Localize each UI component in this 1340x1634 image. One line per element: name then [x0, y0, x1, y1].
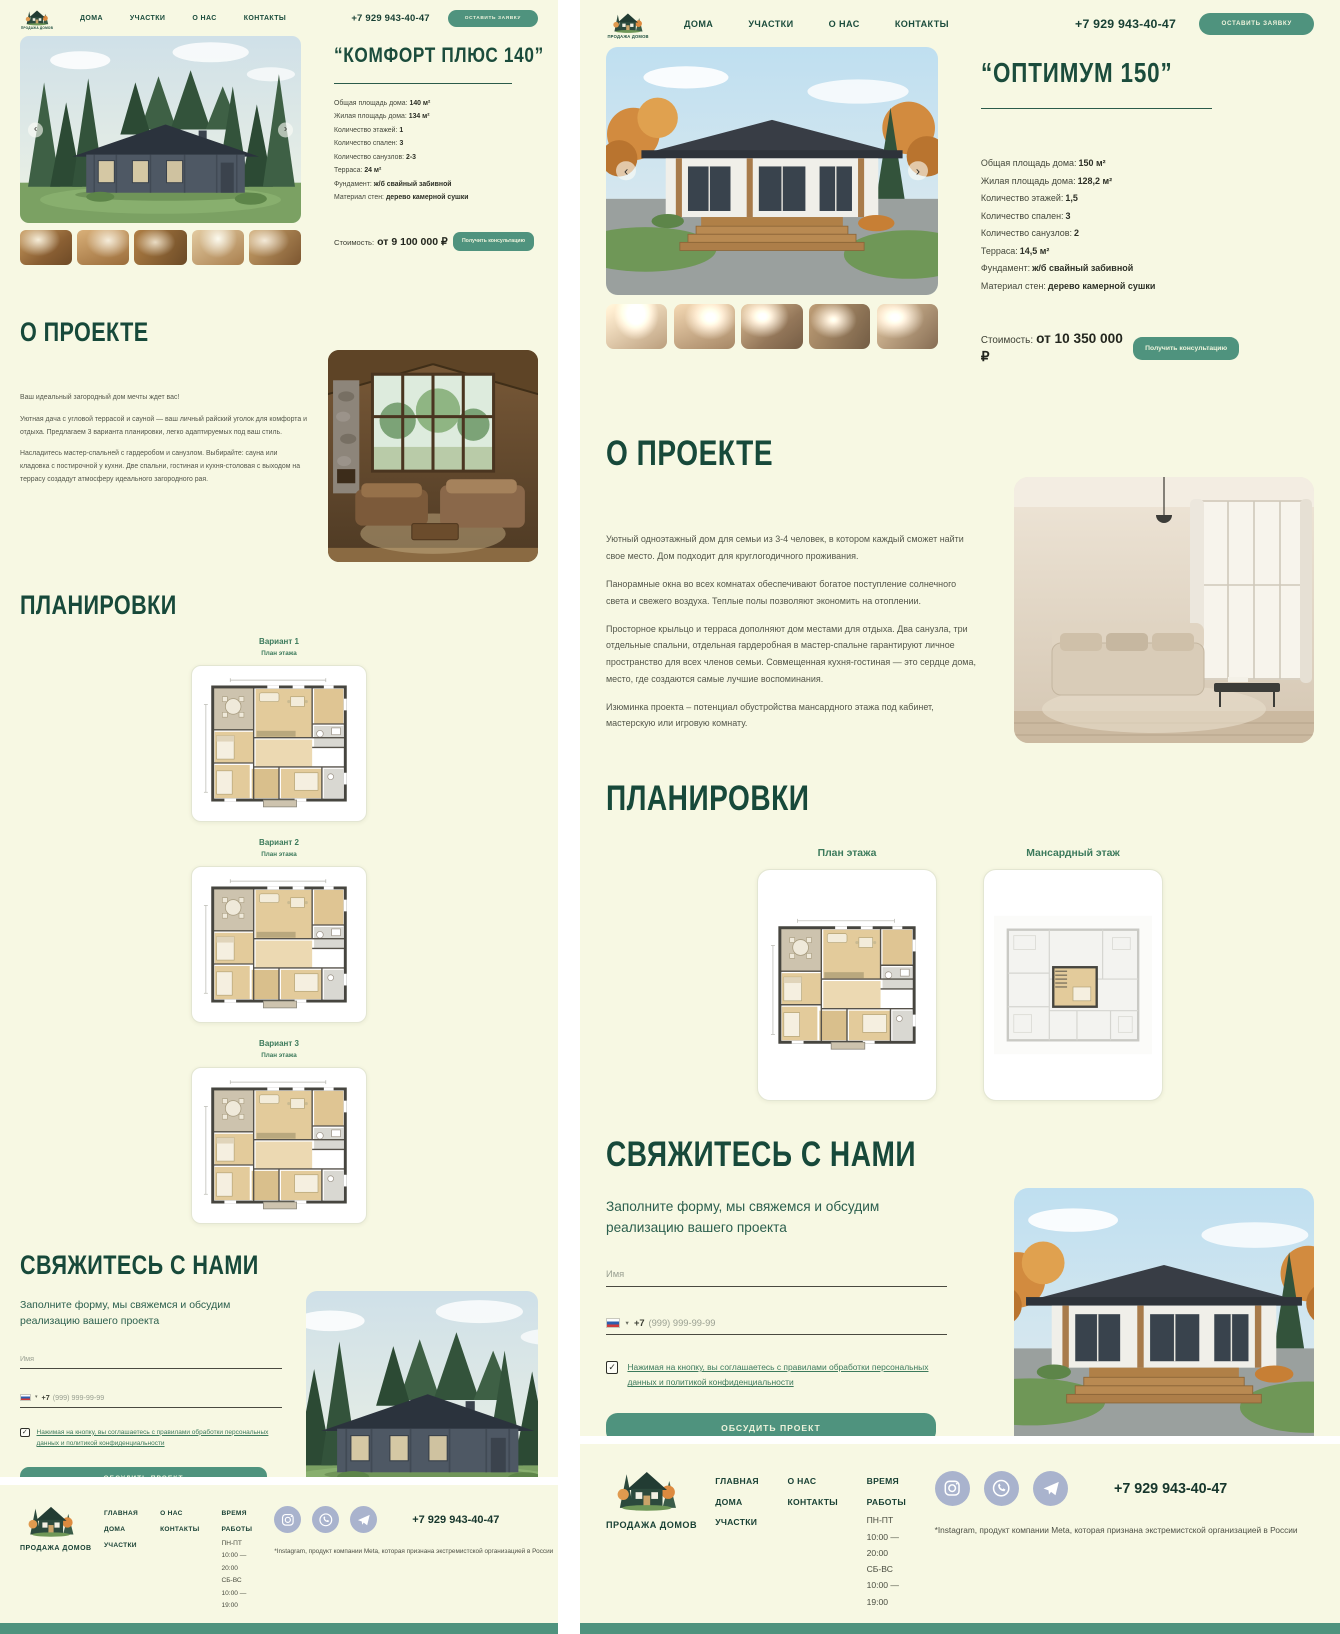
whatsapp-icon[interactable]: [984, 1471, 1019, 1506]
house-exterior-photo: [606, 47, 938, 295]
footer-phone[interactable]: +7 929 943-40-47: [412, 1514, 499, 1526]
contact-form: Заполните форму, мы свяжемся и обсудим р…: [20, 1291, 282, 1477]
nav-link-doma[interactable]: ДОМА: [684, 19, 713, 29]
check-icon: ✓: [22, 1428, 28, 1436]
russia-flag-icon: [20, 1394, 31, 1401]
price-row: Стоимость:от 10 350 000 ₽ Получить консу…: [981, 330, 1239, 366]
chevron-right-icon: ›: [284, 125, 287, 135]
spec-row: Материал стен:дерево камерной сушки: [981, 278, 1314, 295]
footer-link-onas[interactable]: О НАС: [160, 1506, 199, 1522]
footer-phone[interactable]: +7 929 943-40-47: [1114, 1481, 1227, 1497]
footer-logo[interactable]: ПРОДАЖА ДОМОВ: [606, 1463, 687, 1530]
agreement-checkbox[interactable]: ✓: [606, 1361, 618, 1373]
about-section: О ПРОЕКТЕ Ваш идеальный загородный дом м…: [0, 317, 558, 562]
footer-nav-col1: ГЛАВНАЯ ДОМА УЧАСТКИ: [715, 1463, 759, 1533]
gallery-thumbnail[interactable]: [134, 230, 186, 265]
logo-text: ПРОДАЖА ДОМОВ: [607, 34, 648, 39]
spec-row: Количество санузлов:2: [981, 225, 1314, 242]
carousel-next-button[interactable]: ›: [278, 122, 293, 137]
check-icon: ✓: [608, 1362, 616, 1373]
footer-link-onas[interactable]: О НАС: [788, 1471, 838, 1492]
footer-hours: ВРЕМЯ РАБОТЫ ПН-ПТ 10:00 — 20:00 СБ-ВС 1…: [867, 1463, 906, 1610]
plans-section: ПЛАНИРОВКИ Вариант 1 План этажа Вариант …: [0, 590, 558, 1224]
carousel-next-button[interactable]: ›: [908, 161, 928, 181]
site-footer: ПРОДАЖА ДОМОВ ГЛАВНАЯ ДОМА УЧАСТКИ О НАС…: [0, 1485, 558, 1623]
project-info: “ОПТИМУМ 150” Общая площадь дома:150 м² …: [938, 47, 1314, 367]
project-hero: ‹ › “КОМФОРТ ПЛЮС 140” Общая площадь дом…: [0, 36, 558, 265]
floor-plan-image: [201, 1077, 357, 1214]
logo-house-icon: [613, 1463, 681, 1512]
logo-house-icon: [25, 1500, 77, 1538]
floor-plan-image: [201, 675, 357, 812]
footer-link-glavnaya[interactable]: ГЛАВНАЯ: [104, 1506, 138, 1522]
floor-plan-image: [201, 876, 357, 1013]
project-title: “КОМФОРТ ПЛЮС 140”: [334, 44, 544, 68]
gallery-thumbnails: [606, 304, 938, 350]
page-komfort-140: ПРОДАЖА ДОМОВ ДОМА УЧАСТКИ О НАС КОНТАКТ…: [0, 0, 558, 1634]
floor-plan-card[interactable]: [983, 869, 1163, 1101]
site-footer: ПРОДАЖА ДОМОВ ГЛАВНАЯ ДОМА УЧАСТКИ О НАС…: [580, 1444, 1340, 1623]
phone-input[interactable]: [53, 1393, 282, 1402]
main-nav: ДОМА УЧАСТКИ О НАС КОНТАКТЫ: [684, 19, 949, 29]
agreement-row: ✓ Нажимая на кнопку, вы соглашаетесь с п…: [20, 1427, 282, 1450]
project-main-photo: ‹ ›: [606, 47, 938, 295]
photo-gallery: ‹ ›: [606, 47, 938, 367]
nav-link-kontakty[interactable]: КОНТАКТЫ: [244, 15, 286, 22]
request-button[interactable]: ОСТАВИТЬ ЗАЯВКУ: [1199, 13, 1314, 36]
gallery-thumbnail[interactable]: [77, 230, 129, 265]
caret-down-icon[interactable]: ▾: [625, 1319, 628, 1327]
footer-link-uchastki[interactable]: УЧАСТКИ: [715, 1512, 759, 1533]
name-field: [20, 1354, 282, 1369]
spec-row: Общая площадь дома:140 м²: [334, 97, 558, 110]
footer-link-doma[interactable]: ДОМА: [104, 1522, 138, 1538]
footer-link-glavnaya[interactable]: ГЛАВНАЯ: [715, 1471, 759, 1492]
spec-row: Количество этажей:1,5: [981, 190, 1314, 207]
footer-link-uchastki[interactable]: УЧАСТКИ: [104, 1538, 138, 1554]
chevron-left-icon: ‹: [624, 164, 628, 177]
contact-form: Заполните форму, мы свяжемся и обсудим р…: [606, 1188, 947, 1436]
header-phone[interactable]: +7 929 943-40-47: [351, 13, 429, 24]
nav-link-doma[interactable]: ДОМА: [80, 15, 103, 22]
footer-link-kontakty[interactable]: КОНТАКТЫ: [160, 1522, 199, 1538]
name-input[interactable]: [20, 1354, 282, 1363]
gallery-thumbnail[interactable]: [606, 304, 667, 350]
spec-row: Терраса:14,5 м²: [981, 243, 1314, 260]
plan-floor: План этажа: [757, 848, 937, 1101]
footer-hours: ВРЕМЯ РАБОТЫ ПН-ПТ 10:00 — 20:00 СБ-ВС 1…: [221, 1500, 252, 1613]
spec-row: Материал стен:дерево камерной сушки: [334, 191, 558, 204]
plan-attic: Мансардный этаж: [983, 848, 1163, 1101]
floor-plan-image: [768, 882, 926, 1088]
project-main-photo: ‹ ›: [20, 36, 301, 223]
spec-row: Жилая площадь дома:128,2 м²: [981, 173, 1314, 190]
agreement-checkbox[interactable]: ✓: [20, 1428, 30, 1438]
bottom-bar: [0, 1623, 558, 1634]
screenshot-canvas: ПРОДАЖА ДОМОВ ДОМА УЧАСТКИ О НАС КОНТАКТ…: [0, 0, 1340, 1634]
logo-text: ПРОДАЖА ДОМОВ: [21, 26, 53, 30]
footer-nav-col2: О НАС КОНТАКТЫ: [160, 1500, 199, 1538]
telegram-icon[interactable]: [1033, 1471, 1068, 1506]
submit-button[interactable]: ОБСУДИТЬ ПРОЕКТ: [20, 1467, 267, 1477]
consult-button[interactable]: Получить консультацию: [453, 232, 534, 251]
site-header: ПРОДАЖА ДОМОВ ДОМА УЧАСТКИ О НАС КОНТАКТ…: [580, 0, 1340, 39]
footer-gap: [580, 1436, 1340, 1444]
site-header: ПРОДАЖА ДОМОВ ДОМА УЧАСТКИ О НАС КОНТАКТ…: [0, 0, 558, 30]
header-phone[interactable]: +7 929 943-40-47: [1075, 17, 1176, 31]
project-info: “КОМФОРТ ПЛЮС 140” Общая площадь дома:14…: [301, 36, 558, 265]
about-section: О ПРОЕКТЕ Уютный одноэтажный дом для сем…: [580, 434, 1340, 743]
footer-disclaimer: *Instagram, продукт компании Meta, котор…: [935, 1523, 1325, 1538]
footer-gap: [0, 1477, 558, 1485]
house-photo: [306, 1291, 538, 1477]
spec-row: Количество спален:3: [334, 137, 558, 150]
about-text: Уютный одноэтажный дом для семьи из 3-4 …: [606, 531, 980, 742]
footer-nav-col1: ГЛАВНАЯ ДОМА УЧАСТКИ: [104, 1500, 138, 1553]
price: Стоимость:от 9 100 000 ₽: [334, 232, 448, 250]
spec-row: Фундамент:ж/б свайный забивной: [334, 178, 558, 191]
photo-gallery: ‹ ›: [20, 36, 301, 265]
main-nav: ДОМА УЧАСТКИ О НАС КОНТАКТЫ: [80, 15, 286, 22]
logo-house-icon: [24, 7, 50, 26]
chevron-right-icon: ›: [916, 164, 920, 177]
phone-field: ▾ +7: [20, 1393, 282, 1408]
page-optimum-150: ПРОДАЖА ДОМОВ ДОМА УЧАСТКИ О НАС КОНТАКТ…: [580, 0, 1340, 1634]
plans-section: ПЛАНИРОВКИ План этажа Мансардный этаж: [580, 779, 1340, 1101]
nav-link-kontakty[interactable]: КОНТАКТЫ: [895, 19, 949, 29]
project-hero: ‹ › “ОПТИМУМ 150” Общая площадь дома:150…: [580, 47, 1340, 367]
phone-field: ▾ +7: [606, 1318, 947, 1336]
spec-row: Количество санузлов:2-3: [334, 151, 558, 164]
request-button[interactable]: ОСТАВИТЬ ЗАЯВКУ: [448, 10, 538, 27]
footer-right: +7 929 943-40-47 *Instagram, продукт ком…: [274, 1500, 558, 1557]
spec-row: Терраса:24 м²: [334, 164, 558, 177]
contact-subtitle: Заполните форму, мы свяжемся и обсудим р…: [20, 1297, 272, 1330]
about-title: О ПРОЕКТЕ: [20, 317, 149, 348]
footer-disclaimer: *Instagram, продукт компании Meta, котор…: [274, 1546, 558, 1557]
contact-subtitle: Заполните форму, мы свяжемся и обсудим р…: [606, 1196, 934, 1238]
price-row: Стоимость:от 9 100 000 ₽ Получить консул…: [334, 232, 534, 251]
nav-link-onas[interactable]: О НАС: [192, 15, 216, 22]
telegram-icon[interactable]: [350, 1506, 377, 1533]
footer-logo[interactable]: ПРОДАЖА ДОМОВ: [20, 1500, 82, 1552]
instagram-icon[interactable]: [935, 1471, 970, 1506]
spec-row: Количество этажей:1: [334, 124, 558, 137]
floor-plan-card[interactable]: [191, 665, 367, 822]
house-photo: [1014, 1188, 1314, 1436]
footer-link-doma[interactable]: ДОМА: [715, 1492, 759, 1513]
footer-link-kontakty[interactable]: КОНТАКТЫ: [788, 1492, 838, 1513]
nav-link-uchastki[interactable]: УЧАСТКИ: [748, 19, 793, 29]
footer-nav-col2: О НАС КОНТАКТЫ: [788, 1463, 838, 1512]
spec-list: Общая площадь дома:150 м² Жилая площадь …: [981, 155, 1314, 295]
gallery-thumbnail[interactable]: [741, 304, 802, 350]
name-field: [606, 1269, 947, 1287]
spec-list: Общая площадь дома:140 м² Жилая площадь …: [334, 97, 558, 205]
footer-right: +7 929 943-40-47 *Instagram, продукт ком…: [935, 1463, 1325, 1537]
agreement-link[interactable]: Нажимая на кнопку, вы соглашаетесь с пра…: [627, 1360, 946, 1390]
gallery-thumbnail[interactable]: [20, 230, 72, 265]
site-logo[interactable]: ПРОДАЖА ДОМОВ: [20, 7, 54, 30]
gallery-thumbnail[interactable]: [249, 230, 301, 265]
interior-photo: [1014, 477, 1314, 743]
floor-plan-card[interactable]: [191, 866, 367, 1023]
carousel-prev-button[interactable]: ‹: [616, 161, 636, 181]
logo-house-icon: [611, 9, 645, 34]
phone-prefix: +7: [42, 1393, 50, 1402]
spec-row: Жилая площадь дома:134 м²: [334, 110, 558, 123]
title-divider: [981, 108, 1212, 109]
house-exterior-photo: [20, 36, 301, 223]
chevron-left-icon: ‹: [34, 125, 37, 135]
carousel-prev-button[interactable]: ‹: [28, 122, 43, 137]
gallery-thumbnails: [20, 230, 301, 265]
floor-plan-card[interactable]: [191, 1067, 367, 1224]
russia-flag-icon: [606, 1318, 620, 1327]
nav-link-onas[interactable]: О НАС: [829, 19, 860, 29]
phone-input[interactable]: [648, 1318, 946, 1328]
contact-title: СВЯЖИТЕСЬ С НАМИ: [606, 1135, 916, 1175]
submit-button[interactable]: ОБСУДИТЬ ПРОЕКТ: [606, 1413, 936, 1436]
title-divider: [334, 83, 512, 84]
site-logo[interactable]: ПРОДАЖА ДОМОВ: [606, 9, 650, 39]
contact-section: СВЯЖИТЕСЬ С НАМИ Заполните форму, мы свя…: [0, 1250, 558, 1477]
phone-prefix: +7: [634, 1318, 645, 1328]
about-title: О ПРОЕКТЕ: [606, 434, 773, 474]
spec-row: Фундамент:ж/б свайный забивной: [981, 260, 1314, 277]
name-input[interactable]: [606, 1269, 947, 1279]
gallery-thumbnail[interactable]: [674, 304, 735, 350]
spec-row: Количество спален:3: [981, 208, 1314, 225]
interior-photo: [328, 350, 538, 562]
about-text: Ваш идеальный загородный дом мечты ждет …: [20, 392, 308, 562]
gallery-thumbnail[interactable]: [192, 230, 244, 265]
gallery-thumbnail[interactable]: [877, 304, 938, 350]
agreement-link[interactable]: Нажимая на кнопку, вы соглашаетесь с пра…: [37, 1427, 283, 1450]
instagram-icon[interactable]: [274, 1506, 301, 1533]
gallery-thumbnail[interactable]: [809, 304, 870, 350]
project-title: “ОПТИМУМ 150”: [981, 57, 1173, 89]
plan-variant-1: Вариант 1 План этажа: [20, 637, 538, 822]
spec-row: Общая площадь дома:150 м²: [981, 155, 1314, 172]
plans-title: ПЛАНИРОВКИ: [606, 779, 810, 819]
caret-down-icon[interactable]: ▾: [35, 1394, 38, 1400]
floor-plan-image: [994, 882, 1152, 1088]
nav-link-uchastki[interactable]: УЧАСТКИ: [130, 15, 165, 22]
whatsapp-icon[interactable]: [312, 1506, 339, 1533]
contact-section: СВЯЖИТЕСЬ С НАМИ Заполните форму, мы свя…: [580, 1135, 1340, 1436]
floor-plan-card[interactable]: [757, 869, 937, 1101]
agreement-row: ✓ Нажимая на кнопку, вы соглашаетесь с п…: [606, 1360, 947, 1390]
plan-variant-3: Вариант 3 План этажа: [20, 1039, 538, 1224]
plan-variant-2: Вариант 2 План этажа: [20, 838, 538, 1023]
contact-title: СВЯЖИТЕСЬ С НАМИ: [20, 1250, 259, 1281]
consult-button[interactable]: Получить консультацию: [1133, 337, 1238, 361]
plans-title: ПЛАНИРОВКИ: [20, 590, 177, 621]
bottom-bar: [580, 1623, 1340, 1634]
price: Стоимость:от 10 350 000 ₽: [981, 330, 1134, 366]
